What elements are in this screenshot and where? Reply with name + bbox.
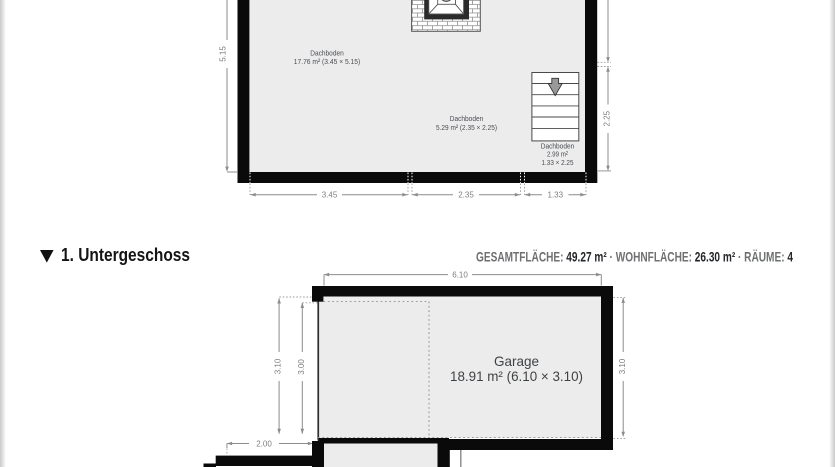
svg-text:3.10: 3.10 bbox=[274, 358, 283, 374]
svg-text:2.00: 2.00 bbox=[256, 439, 272, 448]
svg-text:2.25: 2.25 bbox=[603, 110, 612, 126]
svg-text:GESAMTFLÄCHE: 49.27 m² · WOHNF: GESAMTFLÄCHE: 49.27 m² · WOHNFLÄCHE: 26.… bbox=[476, 248, 793, 264]
svg-text:3.10: 3.10 bbox=[618, 358, 627, 374]
svg-text:6.10: 6.10 bbox=[452, 270, 468, 279]
svg-text:5.29 m² (2.35 × 2.25): 5.29 m² (2.35 × 2.25) bbox=[436, 123, 497, 132]
svg-text:Dachboden: Dachboden bbox=[450, 114, 484, 123]
svg-text:2.35: 2.35 bbox=[458, 191, 474, 200]
svg-text:Garage: Garage bbox=[494, 353, 539, 369]
svg-text:1. Untergeschoss: 1. Untergeschoss bbox=[61, 244, 190, 265]
svg-text:5.15: 5.15 bbox=[219, 46, 228, 62]
svg-text:3.00: 3.00 bbox=[297, 359, 306, 375]
svg-text:3.45: 3.45 bbox=[322, 191, 338, 200]
svg-text:1.33: 1.33 bbox=[548, 191, 564, 200]
svg-text:18.91 m² (6.10 × 3.10): 18.91 m² (6.10 × 3.10) bbox=[450, 368, 583, 384]
svg-text:17.76 m² (3.45 × 5.15): 17.76 m² (3.45 × 5.15) bbox=[294, 57, 361, 66]
svg-text:1.33 × 2.25: 1.33 × 2.25 bbox=[542, 158, 574, 167]
